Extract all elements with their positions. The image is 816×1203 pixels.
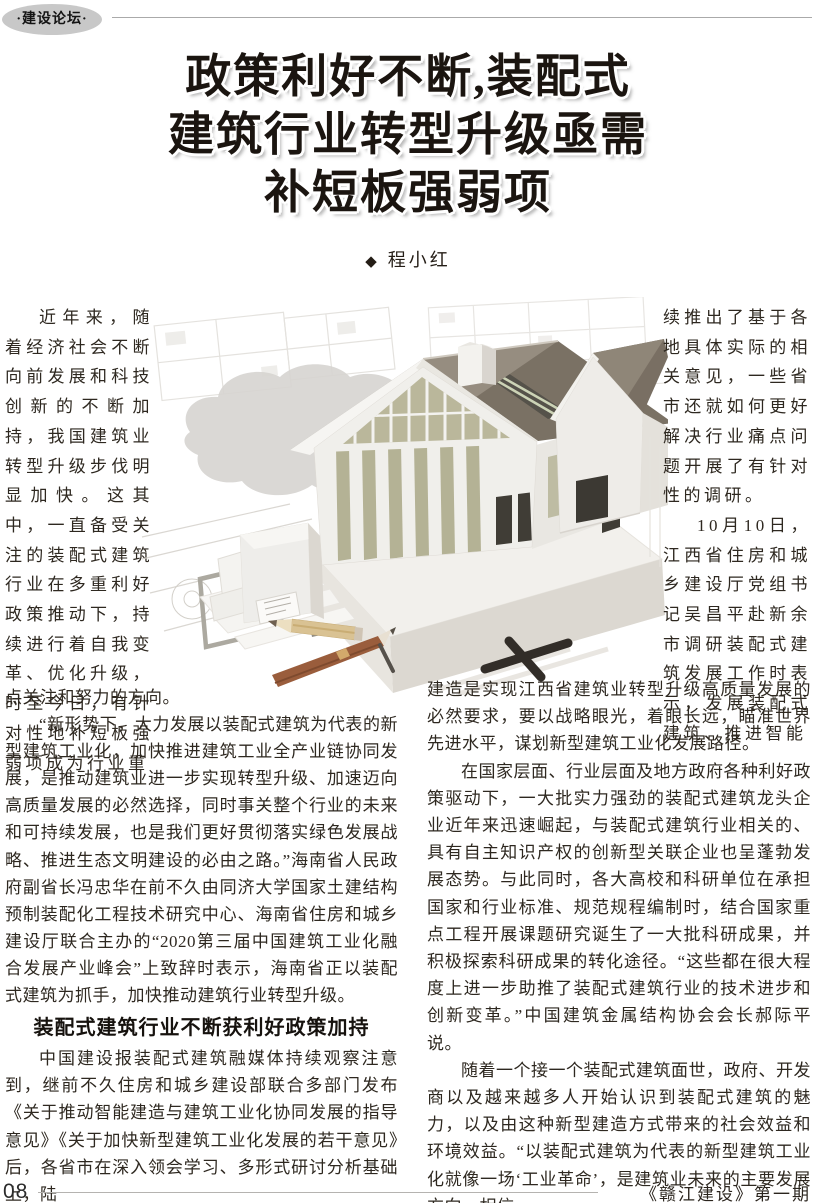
author-name: 程小红 [388,250,451,270]
footer-rule [38,1192,598,1193]
journal-name: 《赣江建设》第一期 [640,1180,811,1203]
paragraph: 点关注和努力的方向。 [5,684,398,711]
paragraph: “新形势下，大力发展以装配式建筑为代表的新型建筑工业化，加快推进建筑工业全产业链… [5,711,398,1009]
magazine-page: ·建设论坛· 政策利好不断,装配式 建筑行业转型升级亟需 补短板强弱项 ◆程小红… [0,0,816,1203]
column-left-wide: 点关注和努力的方向。 “新形势下，大力发展以装配式建筑为代表的新型建筑工业化，加… [5,684,398,1203]
byline: ◆程小红 [0,246,816,272]
section-badge-label: ·建设论坛· [16,12,87,27]
section-badge: ·建设论坛· [2,4,102,35]
paragraph: 建造是实现江西省建筑业转型升级高质量发展的必然要求，要以战略眼光，着眼长远，瞄准… [427,676,811,758]
paragraph: 在国家层面、行业层面及地方政府各种利好政策驱动下，一大批实力强劲的装配式建筑龙头… [427,758,811,1057]
building-model-illustration [140,297,668,695]
article-image [140,297,668,695]
title-line-3: 补短板强弱项 [0,164,816,222]
diamond-icon: ◆ [365,254,380,270]
page-number: 08 [3,1180,28,1203]
title-line-2: 建筑行业转型升级亟需 [0,106,816,164]
paragraph: 续推出了基于各地具体实际的相关意见，一些省市还就如何更好解决行业痛点问题开展了有… [663,303,811,511]
title-line-1: 政策利好不断,装配式 [0,48,816,106]
column-right-wide: 建造是实现江西省建筑业转型升级高质量发展的必然要求，要以战略眼光，着眼长远，瞄准… [427,676,811,1203]
header-rule [112,17,812,18]
paragraph: 中国建设报装配式建筑融媒体持续观察注意到，继前不久住房和城乡建设部联合多部门发布… [5,1045,398,1203]
article-title: 政策利好不断,装配式 建筑行业转型升级亟需 补短板强弱项 [0,48,816,222]
section-heading: 装配式建筑行业不断获利好政策加持 [5,1015,398,1042]
